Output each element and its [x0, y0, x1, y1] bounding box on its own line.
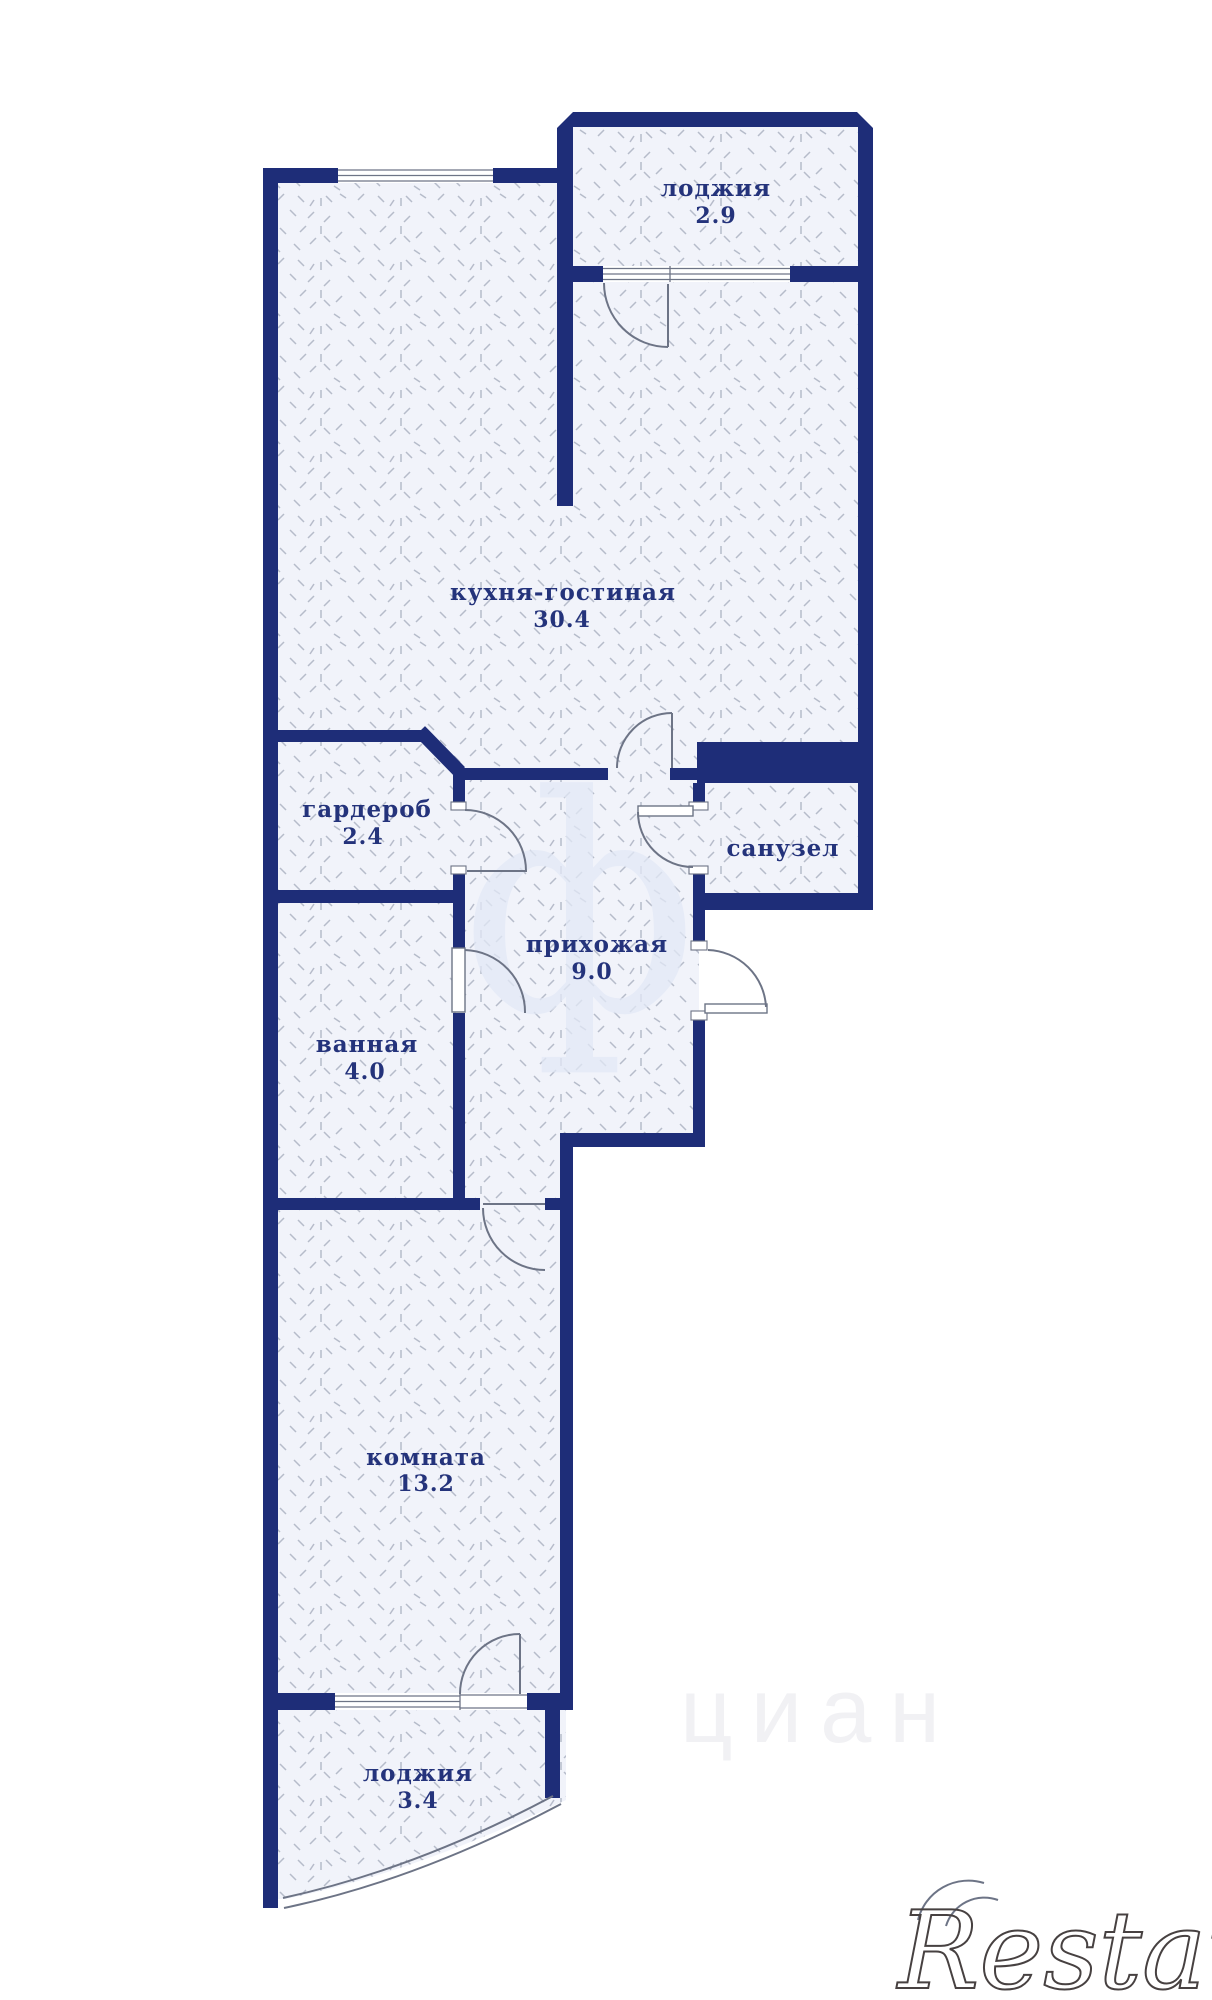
wall-loggia-bottom-right	[545, 1710, 560, 1798]
wall-inner-left-b	[453, 872, 465, 890]
entrance-door	[691, 941, 767, 1020]
wall-hallway-top-b	[670, 768, 697, 780]
wall-wardrobe-bottom	[263, 890, 465, 903]
label-hallway: прихожая	[526, 931, 668, 958]
label-loggia-bottom: лоджия	[363, 1760, 473, 1787]
label-loggia-top: лоджия	[661, 175, 771, 202]
room-window-balcony-block	[335, 1693, 527, 1710]
wall-room-top-b	[545, 1198, 560, 1210]
wall-wc-bottom	[693, 893, 873, 910]
wall-room-bottom-a	[263, 1693, 335, 1710]
area-loggia-top: 2.9	[695, 203, 736, 229]
wall-room-bottom-b	[527, 1693, 573, 1710]
floorplan-drawing: ф	[0, 0, 1212, 2000]
kitchen-window	[338, 168, 493, 183]
wall-loggia-left-stub	[557, 112, 573, 506]
area-room: 13.2	[397, 1471, 455, 1497]
area-hallway: 9.0	[571, 959, 612, 985]
portal-watermark-text: циан	[680, 1660, 958, 1762]
area-loggia-bottom: 3.4	[397, 1788, 438, 1814]
area-wardrobe: 2.4	[342, 824, 383, 850]
logo-watermark-text: Restate	[896, 1889, 1212, 2000]
area-bathroom: 4.0	[344, 1059, 385, 1085]
portal-watermark-glyph: ф	[462, 732, 697, 1081]
label-bathroom: ванная	[316, 1031, 418, 1058]
wall-inner-left-d	[453, 1013, 465, 1198]
wall-room-top-a	[263, 1198, 480, 1210]
area-kitchen-living: 30.4	[533, 607, 591, 633]
wall-wardrobe-top	[263, 730, 423, 742]
hallway-low-fill	[459, 1133, 567, 1204]
wall-loggia-sill-right	[790, 266, 858, 282]
wall-inner-left-c	[453, 903, 465, 948]
label-wardrobe: гардероб	[302, 796, 432, 823]
wall-hallway-top-a	[453, 768, 608, 780]
label-room: комната	[366, 1444, 486, 1471]
wall-loggia-sill-left	[573, 266, 603, 282]
wall-loggia-top	[557, 112, 873, 127]
wall-hall-step	[560, 1133, 705, 1147]
floorplan-page: ф	[0, 0, 1212, 2000]
label-bathroom-wc: санузел	[727, 835, 840, 862]
wall-right-exterior	[858, 112, 873, 910]
wall-room-right	[560, 1147, 573, 1710]
wall-left-exterior	[263, 168, 278, 1908]
loggia-top-window	[603, 266, 790, 282]
wall-shaft-block	[697, 742, 858, 783]
wall-hall-right-b	[693, 1017, 705, 1133]
logo-watermark: Restate	[896, 1881, 1212, 2000]
wall-wc-left-b	[693, 872, 705, 893]
label-kitchen-living: кухня-гостиная	[450, 579, 676, 606]
